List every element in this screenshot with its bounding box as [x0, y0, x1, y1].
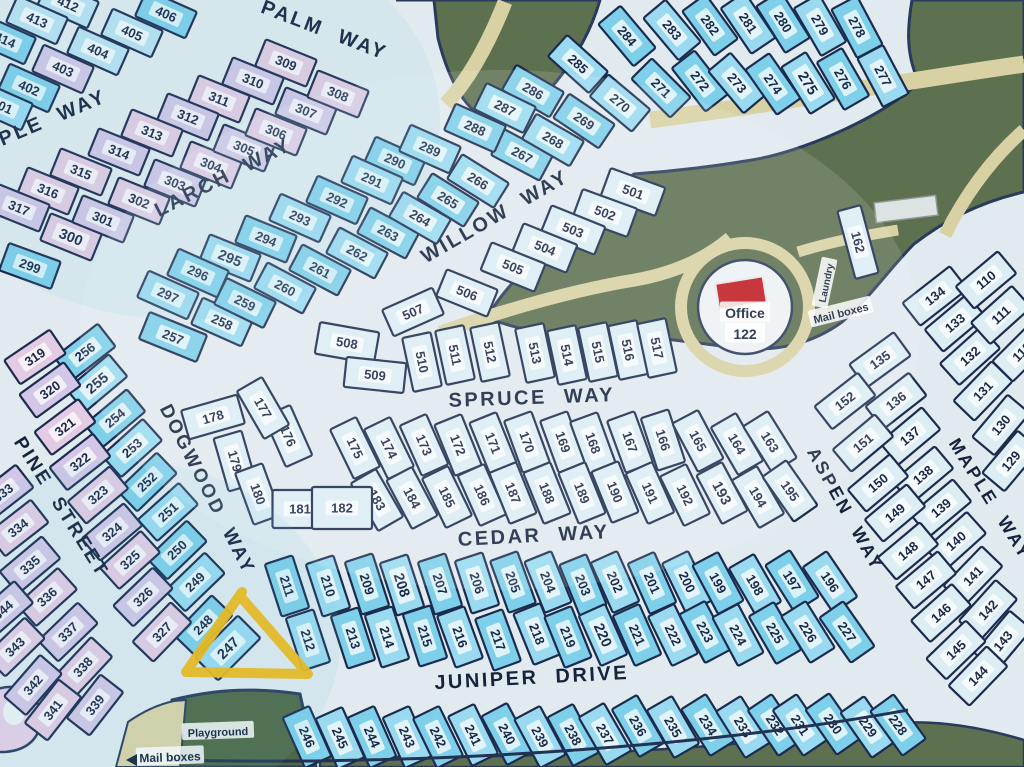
playground-label-text: Playground	[188, 726, 249, 740]
lot-number: 509	[363, 366, 386, 383]
office-label-text: Office	[725, 305, 765, 321]
lot-number: 182	[331, 501, 353, 516]
playground-label: Playground	[182, 721, 255, 741]
park-lot-map: 4124134144064054044034024012993003013023…	[0, 0, 1024, 767]
office-lot-number-text: 122	[733, 326, 757, 342]
map-canvas: 4124134144064054044034024012993003013023…	[0, 0, 1024, 767]
office-lot-number: 122	[725, 323, 765, 343]
mail-boxes-label-2-text: Mail boxes	[139, 749, 201, 765]
office-label: Office	[720, 302, 770, 322]
mail-boxes-label-2: Mail boxes	[136, 745, 205, 765]
lot-182: 182	[312, 487, 372, 529]
lot-509: 509	[344, 357, 407, 393]
lot-number: 181	[289, 502, 311, 517]
